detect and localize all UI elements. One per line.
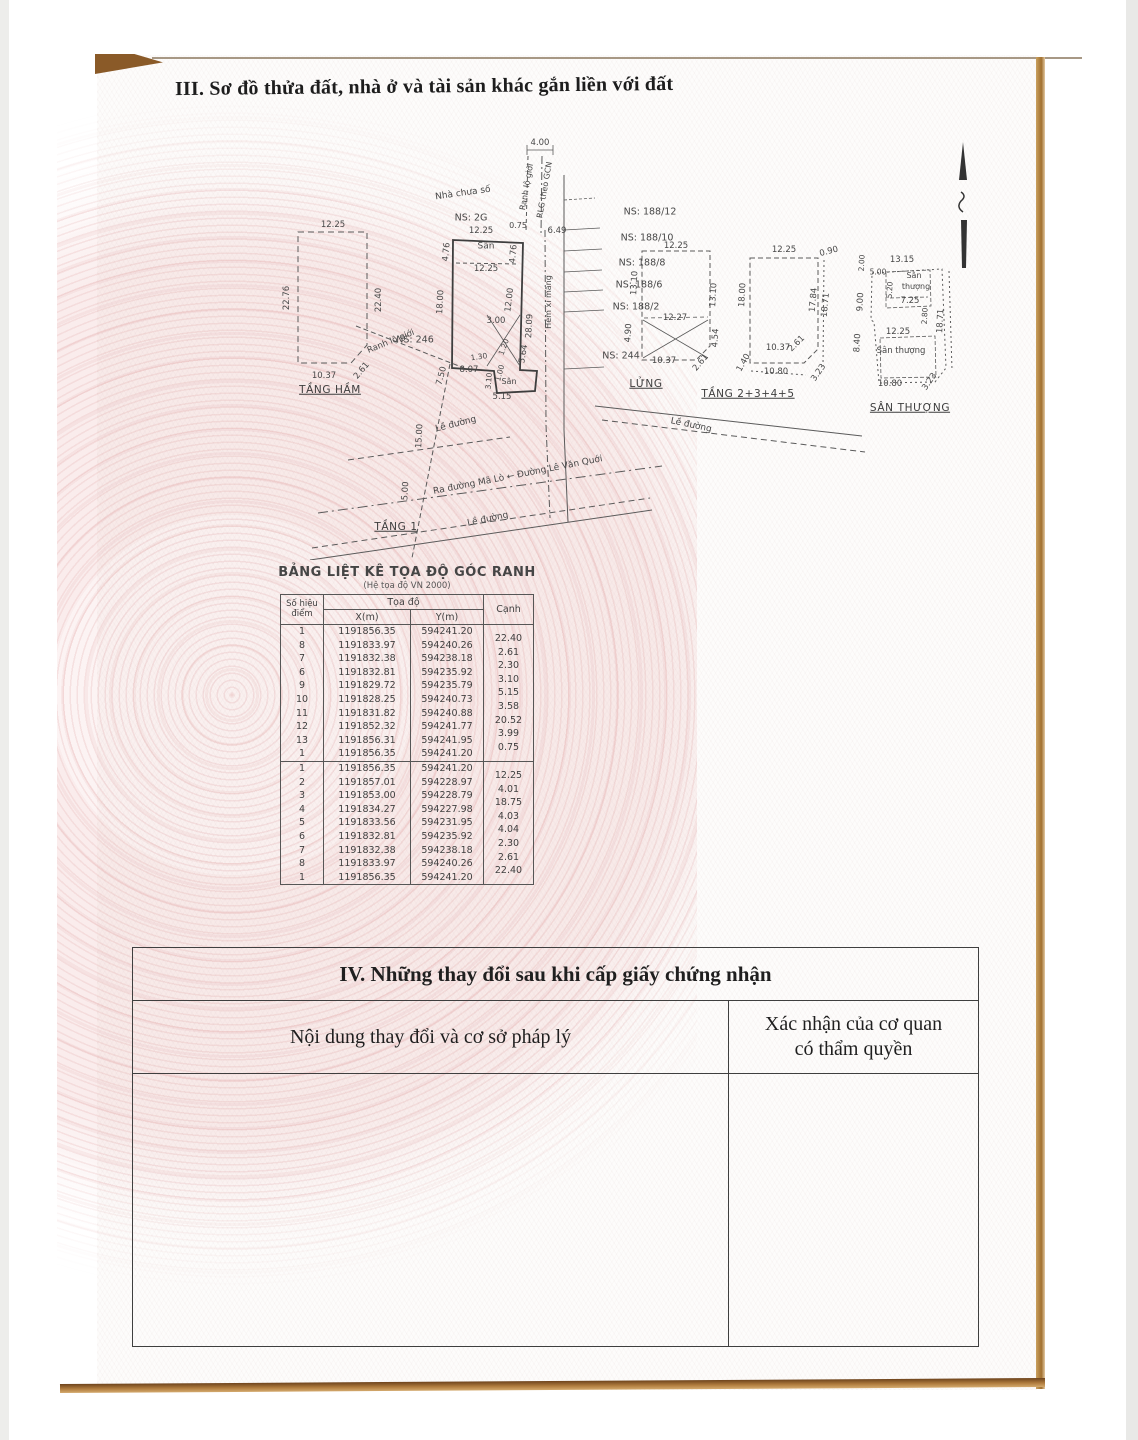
dimension-label: 18.71	[821, 293, 832, 318]
santhuong-outer-right	[949, 271, 952, 370]
dimension-label: 10.37	[312, 372, 336, 381]
dimension-label: Sân	[478, 243, 495, 252]
dimension-label: 4.76	[442, 242, 452, 262]
neighbor-ticks	[564, 228, 604, 369]
floor-label-tang-2345: TẦNG 2+3+4+5	[701, 389, 794, 400]
page-top-edge	[152, 57, 1082, 59]
dimension-label: 4.76	[509, 244, 519, 264]
dimension-label: 18.00	[436, 290, 446, 315]
dimension-label: 17.84	[809, 288, 820, 313]
neighbor-lot-label: NS: 188/8	[619, 258, 666, 268]
dimension-label: 4.00	[531, 139, 550, 148]
sidewalk-line	[348, 437, 510, 460]
coordinate-table-title: BẢNG LIỆT KÊ TỌA ĐỘ GÓC RANH	[247, 565, 567, 580]
site-plan-diagram: 12.2522.7622.4010.372.61TẦNG HẦM4.00Nhà …	[90, 130, 1040, 560]
neighbor-ticks	[564, 198, 595, 200]
dimension-label: 12.25	[772, 246, 796, 255]
photo-background-right	[1126, 0, 1138, 1440]
dimension-label: 12.25	[886, 328, 910, 337]
sidewalk-line	[602, 420, 865, 452]
dimension-label: 12.25	[664, 242, 688, 251]
dimension-label: 12.25	[469, 227, 493, 236]
dimension-label: 8.40	[853, 333, 862, 352]
dimension-label: 28.09	[525, 314, 535, 339]
dimension-label: 2.80	[921, 307, 929, 324]
dimension-label: thượng	[902, 283, 930, 291]
header-point: Số hiệu điểm	[281, 595, 324, 625]
dimension-label: 3.10	[485, 372, 494, 389]
basement-outline	[298, 232, 367, 363]
section4-col1-header: Nội dung thay đổi và cơ sở pháp lý	[133, 1001, 729, 1073]
coordinate-table: Số hiệu điểm Tọa độ Cạnh X(m) Y(m) 11191…	[280, 594, 534, 885]
dimension-label: 12.25	[474, 265, 498, 274]
table-row: 11191856.35594241.2012.25	[281, 761, 534, 775]
dimension-label: 13.10	[630, 271, 640, 296]
header-x: X(m)	[324, 610, 411, 625]
dimension-label: Sân	[501, 378, 516, 386]
dimension-label: 10.37	[652, 357, 676, 366]
dimension-label: 15.00	[415, 424, 425, 449]
dimension-label: 5.20	[886, 281, 894, 298]
section4-col2-header: Xác nhận của cơ quan có thẩm quyền	[729, 1001, 978, 1073]
lung-cross	[643, 320, 708, 358]
dimension-label: 4.54	[711, 328, 720, 347]
dimension-label: 7.25	[901, 297, 920, 306]
dimension-label: 18.00	[738, 283, 748, 308]
header-edge: Cạnh	[484, 595, 534, 625]
section4-col1-body	[133, 1074, 729, 1346]
floor-label-lung: LỬNG	[629, 379, 662, 390]
section3-title: III. Sơ đồ thửa đất, nhà ở và tài sản kh…	[175, 72, 775, 101]
road-centerline	[318, 466, 662, 513]
dimension-label: 6.49	[548, 227, 567, 236]
certificate-page: III. Sơ đồ thửa đất, nhà ở và tài sản kh…	[97, 55, 1037, 1390]
dimension-label: 13.10	[709, 283, 719, 308]
section4-table: IV. Những thay đổi sau khi cấp giấy chứn…	[132, 947, 979, 1347]
header-coords: Tọa độ	[324, 595, 484, 610]
book-edge-bottom	[60, 1378, 1045, 1393]
alley-label: Hẻm xi măng	[545, 275, 553, 329]
neighbor-lot-label: NS: 2G	[455, 213, 488, 223]
neighbor-lot-label: NS: 188/2	[613, 302, 660, 312]
photo-background-left	[0, 0, 9, 1440]
dimension-label: 12.25	[321, 221, 345, 230]
dimension-label: 0.75	[509, 222, 527, 230]
floor-label-tang-1: TẦNG 1	[374, 522, 417, 533]
coordinate-table-subtitle: (Hệ tọa độ VN 2000)	[247, 581, 567, 591]
dimension-label: 10.80	[878, 380, 902, 389]
north-arrow	[959, 142, 967, 268]
dimension-label: 5.15	[493, 393, 512, 402]
dimension-label: Sân thượng	[877, 347, 926, 356]
dimension-label: 10.37	[766, 344, 790, 353]
dimension-label: 2.00	[858, 254, 866, 271]
neighbor-lot-label: NS: 188/12	[624, 207, 677, 217]
dimension-label: 18.71	[936, 309, 946, 334]
dimension-label: 9.00	[856, 292, 865, 311]
section4-title: IV. Những thay đổi sau khi cấp giấy chứn…	[133, 948, 978, 1001]
header-y: Y(m)	[411, 610, 484, 625]
dimension-label: 4.90	[624, 323, 633, 342]
section4-col2-body	[729, 1074, 978, 1346]
dimension-label: 3.00	[487, 317, 506, 326]
table-row: 11191856.35594241.2022.40	[281, 625, 534, 639]
dimension-label: 5.00	[870, 268, 887, 276]
dimension-label: 8.07	[460, 366, 479, 375]
coordinate-table-section: BẢNG LIỆT KÊ TỌA ĐỘ GÓC RANH (Hệ tọa độ …	[280, 565, 533, 885]
neighbor-lot-label: NS: 244	[602, 351, 640, 361]
floor-label-tang-ham: TẦNG HẦM	[299, 385, 361, 396]
floor-label-san-thuong: SÂN THƯỢNG	[870, 403, 950, 414]
dimension-label: 13.15	[890, 256, 914, 265]
dimension-label: 5.00	[401, 481, 410, 500]
road-edge-line	[595, 406, 862, 436]
coord-table-body: 11191856.35594241.2022.4081191833.975942…	[281, 625, 534, 885]
dimension-label: 22.40	[375, 288, 384, 312]
santhuong-lower-terrace	[880, 336, 936, 378]
dimension-label: Sân	[906, 272, 921, 280]
dimension-label: 10.80	[764, 368, 788, 377]
dimension-label: 22.76	[283, 286, 292, 310]
dimension-label: 1.30	[470, 352, 488, 362]
dimension-label: 12.27	[663, 314, 687, 323]
